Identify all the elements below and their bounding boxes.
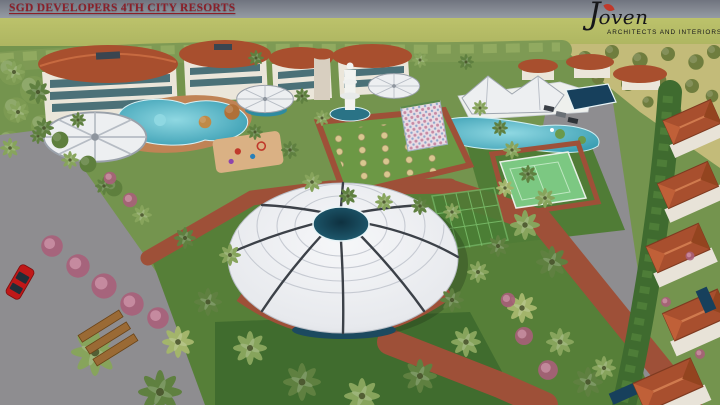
logo-wordmark: Joven [588, 2, 706, 30]
architect-logo: Joven ARCHITECTS AND INTERIORS [588, 2, 706, 36]
resort-aerial-render [0, 0, 720, 405]
logo-tagline: ARCHITECTS AND INTERIORS [607, 29, 706, 36]
stage-backdrop [400, 101, 447, 151]
render-canvas: SGD DEVELOPERS 4TH CITY RESORTS Joven AR… [0, 0, 720, 405]
logo-initial: J [588, 0, 598, 32]
developer-title: SGD DEVELOPERS 4TH CITY RESORTS [9, 2, 235, 14]
